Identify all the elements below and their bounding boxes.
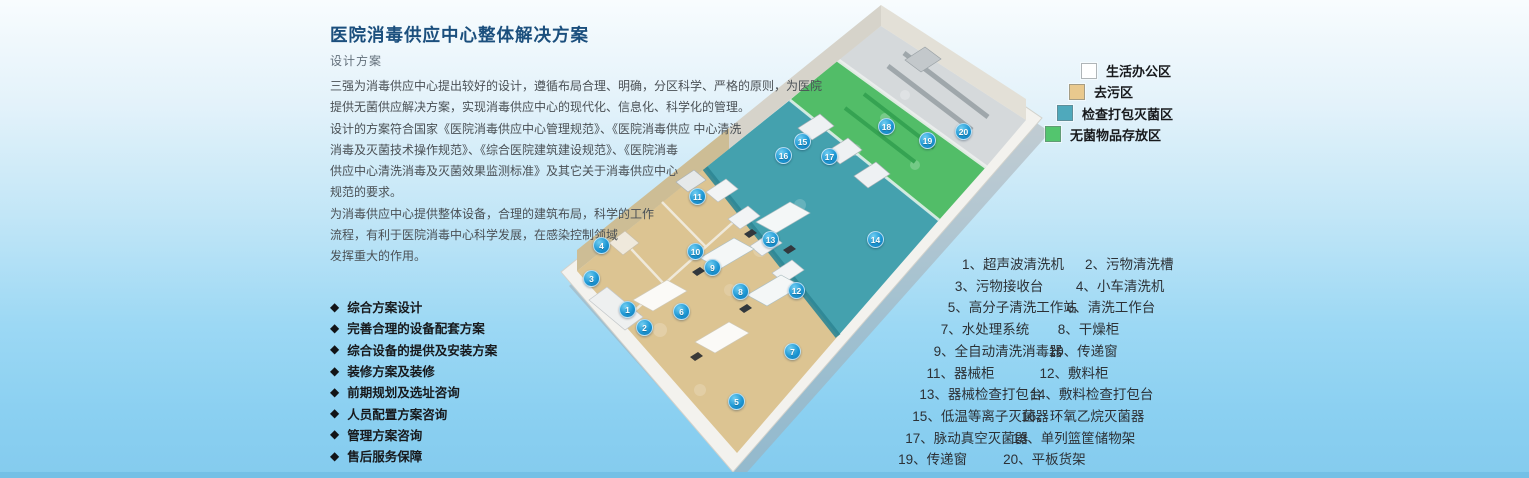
map-marker-9: 9 xyxy=(704,259,721,276)
diamond-icon: ◆ xyxy=(330,449,339,463)
equipment-item: 14、敷料检查打包台 xyxy=(1030,383,1153,403)
bullet-label: 人员配置方案咨询 xyxy=(347,404,447,423)
map-marker-2: 2 xyxy=(636,319,653,336)
equipment-item: 7、水处理系统 xyxy=(941,318,1030,338)
map-marker-12: 12 xyxy=(788,282,805,299)
page-title: 医院消毒供应中心整体解决方案 xyxy=(330,22,589,47)
bullet-item: ◆装修方案及装修 xyxy=(330,360,497,381)
legend-swatch xyxy=(1069,84,1085,100)
map-marker-18: 18 xyxy=(878,118,895,135)
bullet-list: ◆综合方案设计◆完善合理的设备配套方案◆综合设备的提供及安装方案◆装修方案及装修… xyxy=(330,296,497,466)
equipment-item: 17、脉动真空灭菌器 xyxy=(905,427,1028,447)
equipment-item: 3、污物接收台 xyxy=(955,275,1044,295)
map-marker-10: 10 xyxy=(687,243,704,260)
map-marker-14: 14 xyxy=(867,231,884,248)
equipment-item: 6、清洗工作台 xyxy=(1067,296,1156,316)
bullet-item: ◆管理方案咨询 xyxy=(330,424,497,445)
legend-swatch xyxy=(1045,126,1061,142)
bullet-label: 综合方案设计 xyxy=(347,297,422,316)
equipment-item: 13、器械检查打包台 xyxy=(919,383,1042,403)
diamond-icon: ◆ xyxy=(330,406,339,420)
map-marker-6: 6 xyxy=(673,303,690,320)
legend-label: 生活办公区 xyxy=(1106,61,1171,80)
bullet-label: 综合设备的提供及安装方案 xyxy=(347,340,497,359)
equipment-item: 19、传递窗 xyxy=(898,448,967,468)
legend-item: 检查打包灭菌区 xyxy=(1057,104,1173,123)
diamond-icon: ◆ xyxy=(330,342,339,356)
map-marker-7: 7 xyxy=(784,343,801,360)
legend-item: 去污区 xyxy=(1069,82,1133,101)
equipment-item: 1、超声波清洗机 xyxy=(962,253,1064,273)
legend-swatch xyxy=(1081,63,1097,79)
map-marker-20: 20 xyxy=(955,123,972,140)
bullet-item: ◆人员配置方案咨询 xyxy=(330,402,497,423)
bullet-item: ◆综合设备的提供及安装方案 xyxy=(330,339,497,360)
map-marker-16: 16 xyxy=(775,147,792,164)
bullet-label: 售后服务保障 xyxy=(347,446,422,465)
equipment-item: 10、传递窗 xyxy=(1049,340,1118,360)
legend-label: 去污区 xyxy=(1094,82,1133,101)
diamond-icon: ◆ xyxy=(330,427,339,441)
page: 1234567891011121314151617181920 医院消毒供应中心… xyxy=(0,0,1529,478)
equipment-item: 2、污物清洗槽 xyxy=(1085,253,1174,273)
equipment-item: 12、敷料柜 xyxy=(1040,362,1109,382)
map-marker-11: 11 xyxy=(689,188,706,205)
bullet-item: ◆售后服务保障 xyxy=(330,445,497,466)
map-marker-8: 8 xyxy=(732,283,749,300)
map-marker-4: 4 xyxy=(593,237,610,254)
bullet-label: 装修方案及装修 xyxy=(347,361,435,380)
map-marker-13: 13 xyxy=(762,231,779,248)
equipment-item: 4、小车清洗机 xyxy=(1076,275,1165,295)
legend-label: 检查打包灭菌区 xyxy=(1082,104,1173,123)
equipment-item: 16、环氧乙烷灭菌器 xyxy=(1021,405,1144,425)
diamond-icon: ◆ xyxy=(330,300,339,314)
equipment-item: 8、干燥柜 xyxy=(1058,318,1120,338)
bullet-item: ◆前期规划及选址咨询 xyxy=(330,381,497,402)
footer-strip xyxy=(0,472,1529,478)
legend-item: 生活办公区 xyxy=(1081,61,1171,80)
bullet-item: ◆完善合理的设备配套方案 xyxy=(330,317,497,338)
bullet-label: 管理方案咨询 xyxy=(347,425,422,444)
equipment-item: 5、高分子清洗工作站 xyxy=(948,296,1077,316)
bullet-label: 前期规划及选址咨询 xyxy=(347,382,460,401)
bullet-item: ◆综合方案设计 xyxy=(330,296,497,317)
bullet-label: 完善合理的设备配套方案 xyxy=(347,318,485,337)
map-marker-17: 17 xyxy=(821,148,838,165)
equipment-item: 11、器械柜 xyxy=(927,362,995,382)
map-marker-19: 19 xyxy=(919,132,936,149)
map-marker-5: 5 xyxy=(728,393,745,410)
page-subtitle: 设计方案 xyxy=(330,52,382,69)
equipment-item: 20、平板货架 xyxy=(1003,448,1086,468)
map-marker-3: 3 xyxy=(583,270,600,287)
description: 三强为消毒供应中心提出较好的设计，遵循布局合理、明确，分区科学、严格的原则，为医… xyxy=(330,76,830,268)
diamond-icon: ◆ xyxy=(330,364,339,378)
map-marker-15: 15 xyxy=(794,133,811,150)
diamond-icon: ◆ xyxy=(330,385,339,399)
map-marker-1: 1 xyxy=(619,301,636,318)
equipment-item: 18、单列篮筐储物架 xyxy=(1012,427,1135,447)
diamond-icon: ◆ xyxy=(330,321,339,335)
legend-label: 无菌物品存放区 xyxy=(1070,125,1161,144)
legend-swatch xyxy=(1057,105,1073,121)
legend-item: 无菌物品存放区 xyxy=(1045,125,1161,144)
equipment-item: 9、全自动清洗消毒器 xyxy=(934,340,1063,360)
